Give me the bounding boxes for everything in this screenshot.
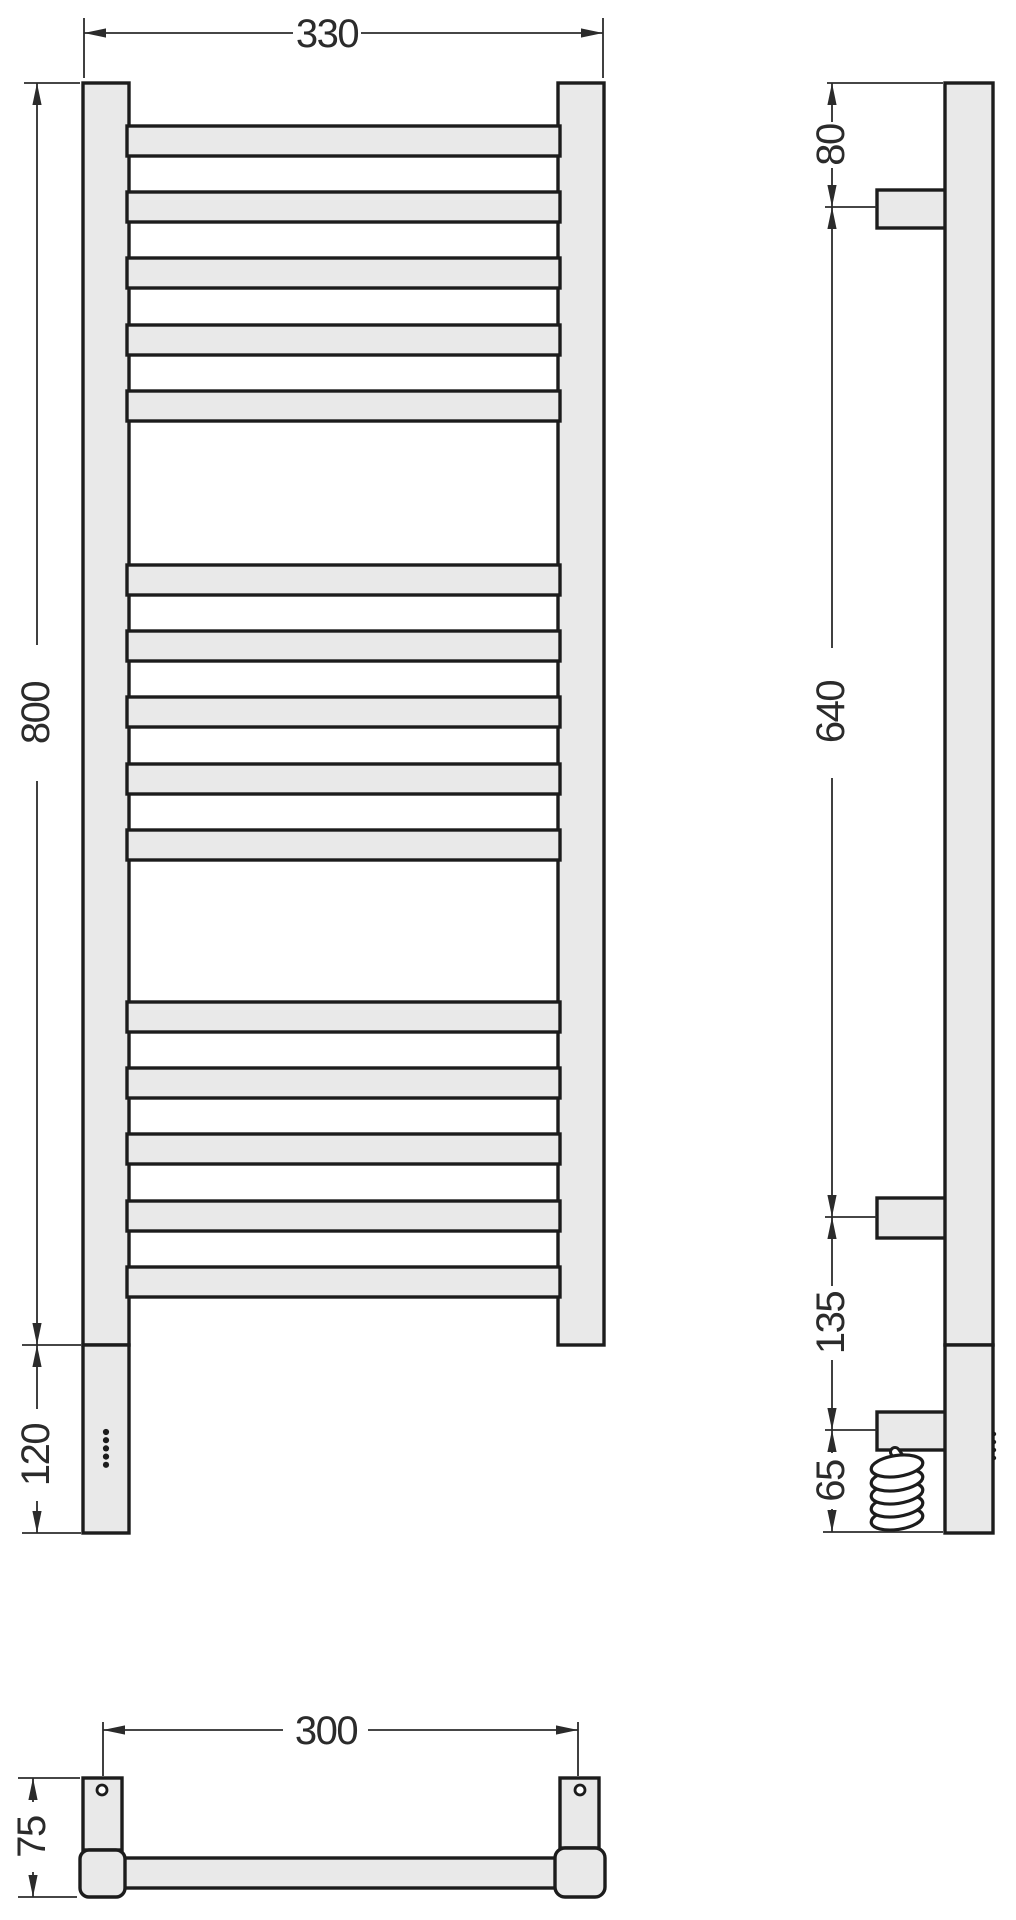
bottom-crossbar [124, 1858, 556, 1888]
bottom-right-screw-hole [575, 1785, 585, 1795]
rung [127, 830, 560, 860]
arrowhead-right [581, 28, 603, 37]
indicator-dot-side [992, 1448, 996, 1452]
dim-label-side-top-to-bracket: 80 [809, 124, 853, 166]
dim-label-side-bracket-span: 640 [809, 681, 853, 743]
rung [127, 1201, 560, 1231]
side-post-upper [945, 83, 993, 1345]
indicator-dot [103, 1445, 109, 1451]
rung [127, 764, 560, 794]
front-right-post [558, 83, 604, 1345]
arrowhead-left [103, 1725, 125, 1734]
arrowhead-up [28, 1778, 37, 1800]
dim-side-bracket-span: 640 [809, 207, 877, 1217]
indicator-dot [103, 1454, 109, 1460]
dim-front-lower-housing: 120 [14, 1345, 81, 1533]
dim-front-height: 800 [14, 83, 81, 1345]
arrowhead-left [84, 28, 106, 37]
dim-front-width: 330 [84, 12, 603, 78]
dim-bottom-bracket-span: 300 [103, 1709, 578, 1776]
bottom-view [80, 1778, 605, 1897]
indicator-dot [103, 1437, 109, 1443]
indicator-dot-side [992, 1456, 996, 1460]
side-view [870, 83, 996, 1533]
rung [127, 258, 560, 288]
rung [127, 697, 560, 727]
drawing-canvas: 330 800 120 [0, 0, 1016, 1920]
arrowhead-up [827, 207, 836, 229]
front-left-post [83, 83, 129, 1345]
front-view [83, 83, 604, 1533]
rung [127, 565, 560, 595]
dim-side-bracket-to-box: 135 [809, 1217, 877, 1430]
arrowhead-up [32, 83, 41, 105]
dim-label-side-box-to-bottom: 65 [809, 1460, 853, 1502]
arrowhead-down [827, 1408, 836, 1430]
arrowhead-up [32, 1345, 41, 1367]
dim-label-bottom-depth: 75 [10, 1816, 54, 1858]
indicator-dot [103, 1462, 109, 1468]
indicator-dot [103, 1429, 109, 1435]
rung [127, 1002, 560, 1032]
dim-label-front-height: 800 [14, 682, 58, 744]
arrowhead-up [827, 1430, 836, 1452]
rung [127, 1267, 560, 1297]
side-electric-box [877, 1412, 947, 1450]
arrowhead-down [827, 185, 836, 207]
dim-label-bottom-bracket-span: 300 [295, 1709, 357, 1753]
side-dimensions: 80 640 135 65 [809, 83, 943, 1532]
indicator-dot-side [992, 1440, 996, 1444]
rung-group [127, 126, 560, 1297]
power-cable-coil [870, 1452, 924, 1533]
arrowhead-up [827, 1217, 836, 1239]
arrowhead-down [32, 1511, 41, 1533]
technical-drawing: 330 800 120 [0, 0, 1016, 1920]
dim-label-front-lower-housing: 120 [14, 1424, 58, 1486]
side-post-lower [945, 1345, 993, 1533]
arrowhead-down [28, 1875, 37, 1897]
rung [127, 192, 560, 222]
rung [127, 1068, 560, 1098]
rung [127, 325, 560, 355]
rung [127, 391, 560, 421]
arrowhead-down [827, 1195, 836, 1217]
bottom-right-corner-block [555, 1848, 605, 1897]
rung [127, 1134, 560, 1164]
bottom-left-corner-block [80, 1850, 125, 1897]
dim-bottom-depth: 75 [10, 1778, 80, 1897]
bottom-left-screw-hole [97, 1785, 107, 1795]
dim-label-side-bracket-to-box: 135 [809, 1292, 853, 1354]
side-wall-bracket-middle [877, 1198, 947, 1238]
arrowhead-down [32, 1323, 41, 1345]
indicator-dot-side [992, 1432, 996, 1436]
side-wall-bracket-top [877, 190, 947, 228]
arrowhead-right [556, 1725, 578, 1734]
dim-label-front-width: 330 [296, 12, 358, 56]
arrowhead-up [827, 83, 836, 105]
rung [127, 126, 560, 156]
rung [127, 631, 560, 661]
arrowhead-down [827, 1510, 836, 1532]
